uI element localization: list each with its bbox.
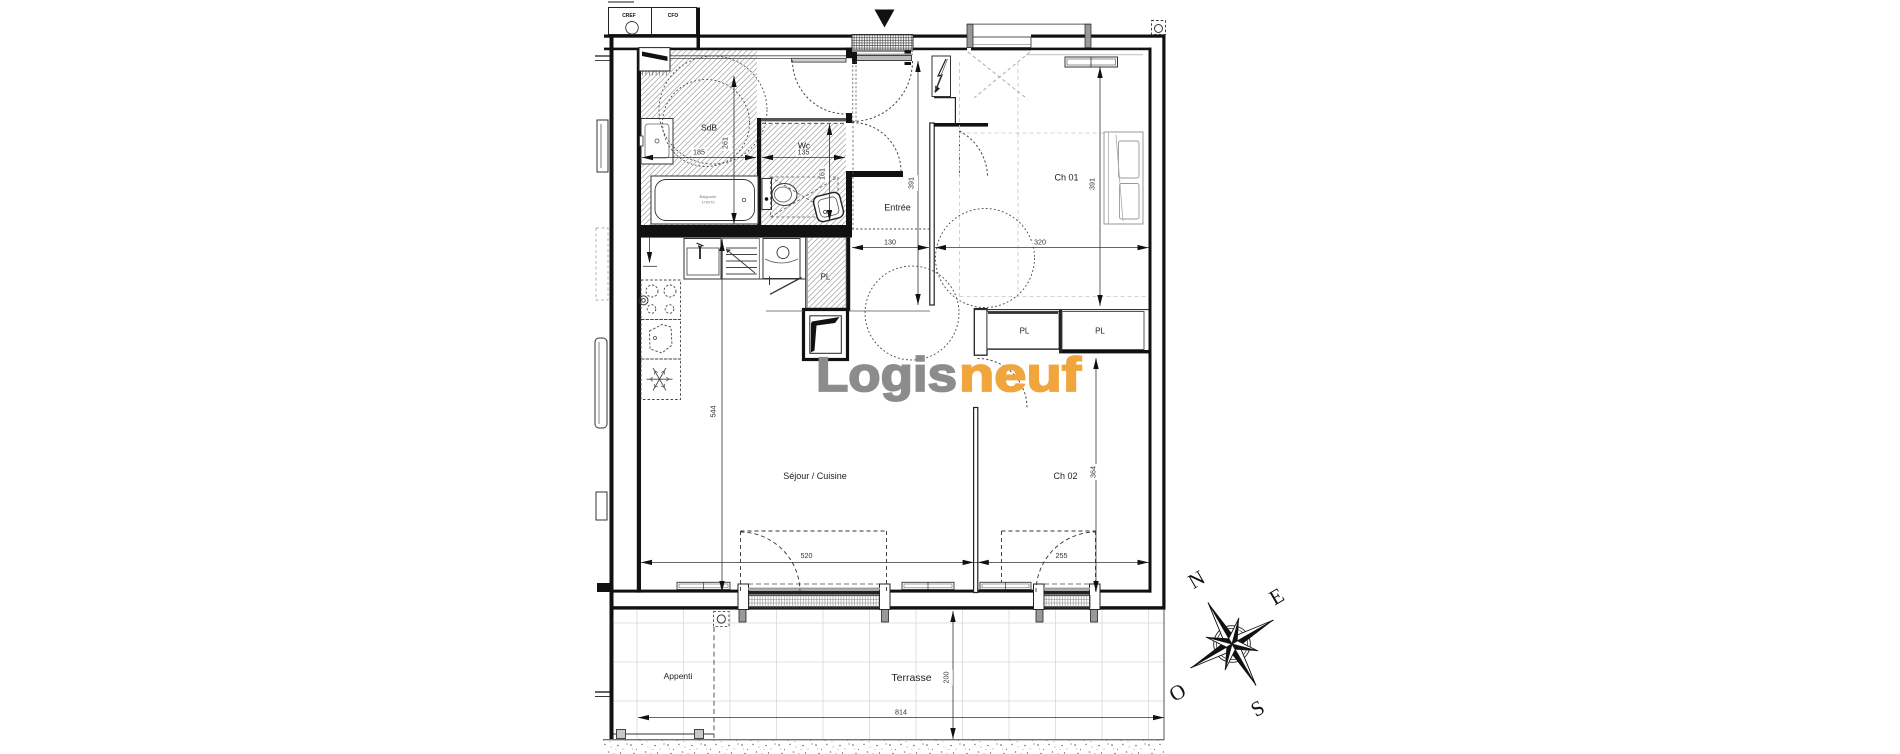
svg-text:520: 520	[801, 551, 813, 560]
svg-text:CFO: CFO	[668, 13, 679, 19]
svg-text:Ch 01: Ch 01	[1054, 173, 1078, 183]
svg-text:170x70: 170x70	[701, 200, 715, 205]
svg-text:185: 185	[693, 148, 705, 157]
svg-text:SdB: SdB	[701, 123, 717, 133]
svg-text:Terrasse: Terrasse	[891, 672, 931, 684]
svg-text:391: 391	[1087, 178, 1096, 190]
svg-text:neuf: neuf	[959, 349, 1082, 402]
svg-text:Entrée: Entrée	[884, 203, 911, 213]
svg-text:Baignoire: Baignoire	[700, 194, 718, 199]
svg-text:391: 391	[907, 177, 916, 189]
svg-text:364: 364	[1089, 466, 1098, 478]
svg-text:Wc: Wc	[798, 141, 811, 151]
svg-text:320: 320	[1034, 238, 1046, 247]
svg-text:130: 130	[884, 238, 896, 247]
svg-text:PL: PL	[1095, 327, 1105, 336]
svg-text:PL: PL	[821, 273, 831, 282]
svg-text:261: 261	[721, 137, 730, 149]
svg-text:200: 200	[941, 672, 950, 684]
svg-text:255: 255	[1056, 551, 1068, 560]
svg-text:Logis: Logis	[816, 349, 957, 402]
svg-text:Appenti: Appenti	[664, 671, 693, 681]
svg-text:161: 161	[818, 168, 827, 180]
svg-text:544: 544	[709, 406, 718, 418]
svg-text:PL: PL	[1020, 327, 1030, 336]
svg-text:814: 814	[895, 708, 907, 717]
svg-text:Ch 02: Ch 02	[1053, 471, 1077, 481]
svg-text:Séjour / Cuisine: Séjour / Cuisine	[783, 471, 847, 481]
svg-text:CREF: CREF	[622, 13, 636, 19]
